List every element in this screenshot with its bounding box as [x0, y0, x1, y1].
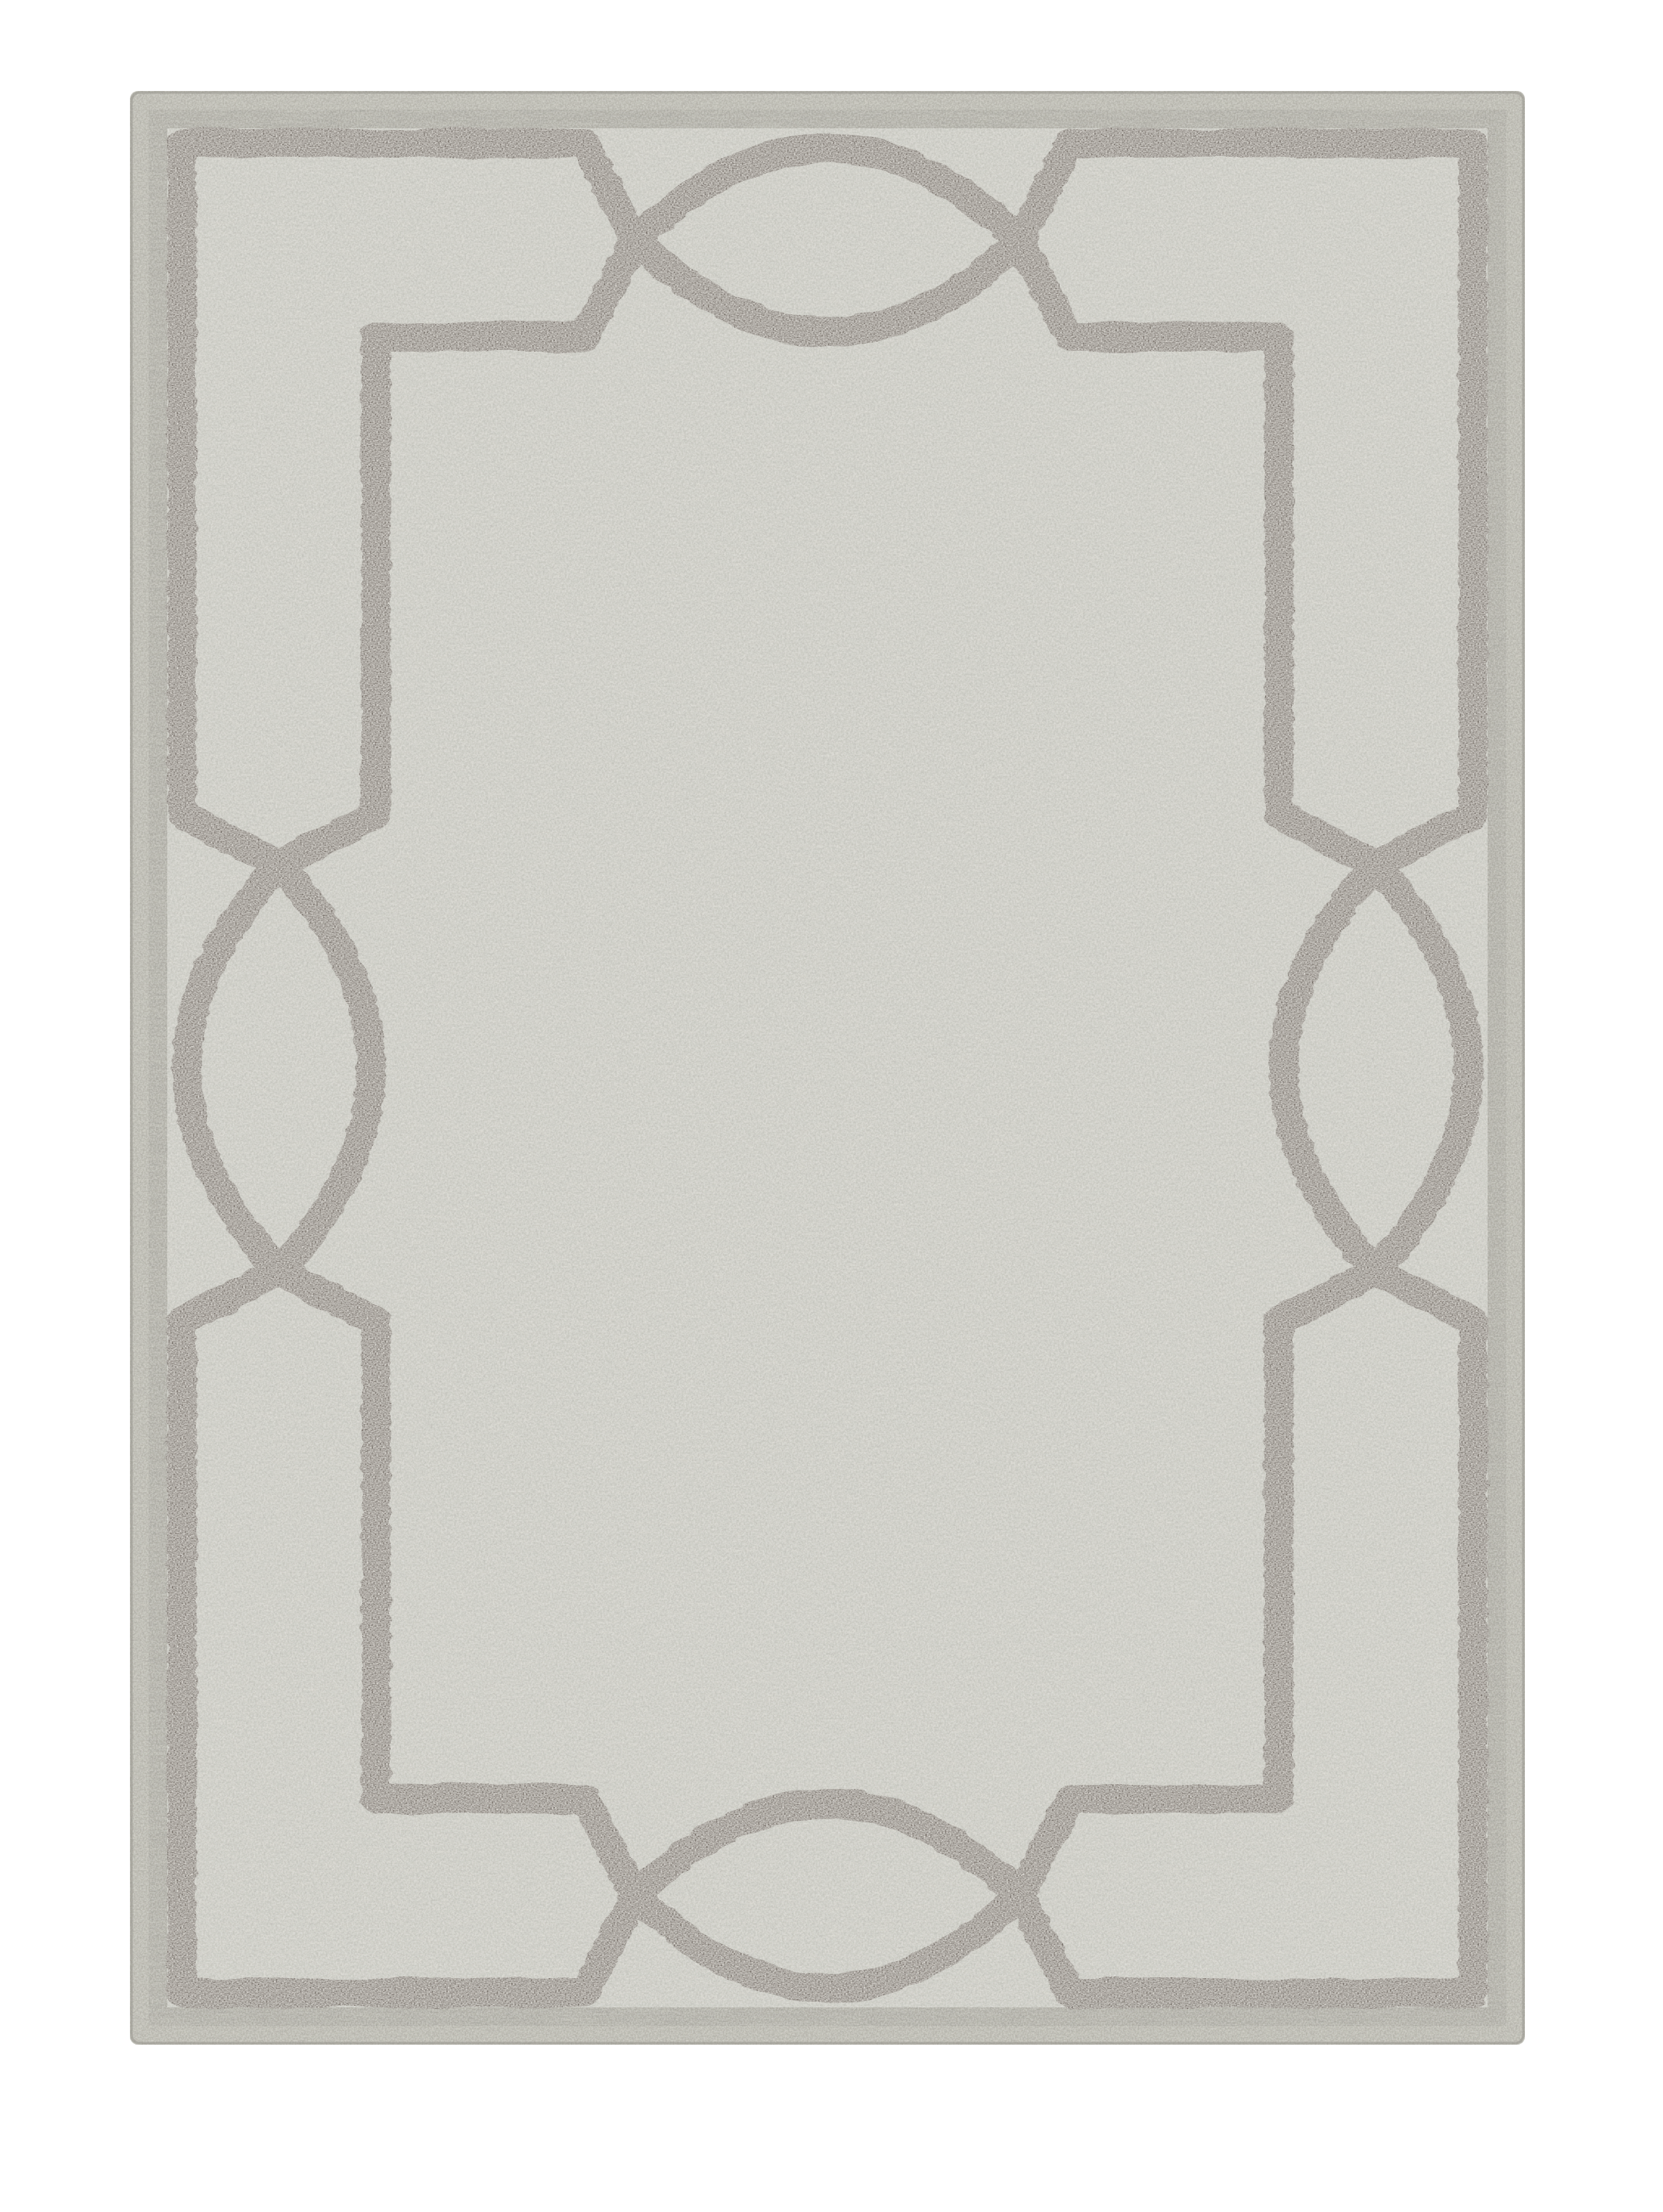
rug-field-texture — [130, 91, 1525, 2045]
page-background: { "meta": { "image_type": "product-photo… — [0, 0, 1663, 2212]
rug-photo — [130, 91, 1525, 2045]
rug-grain-warm-mottle — [130, 91, 1525, 2045]
rug-image — [130, 91, 1525, 2045]
